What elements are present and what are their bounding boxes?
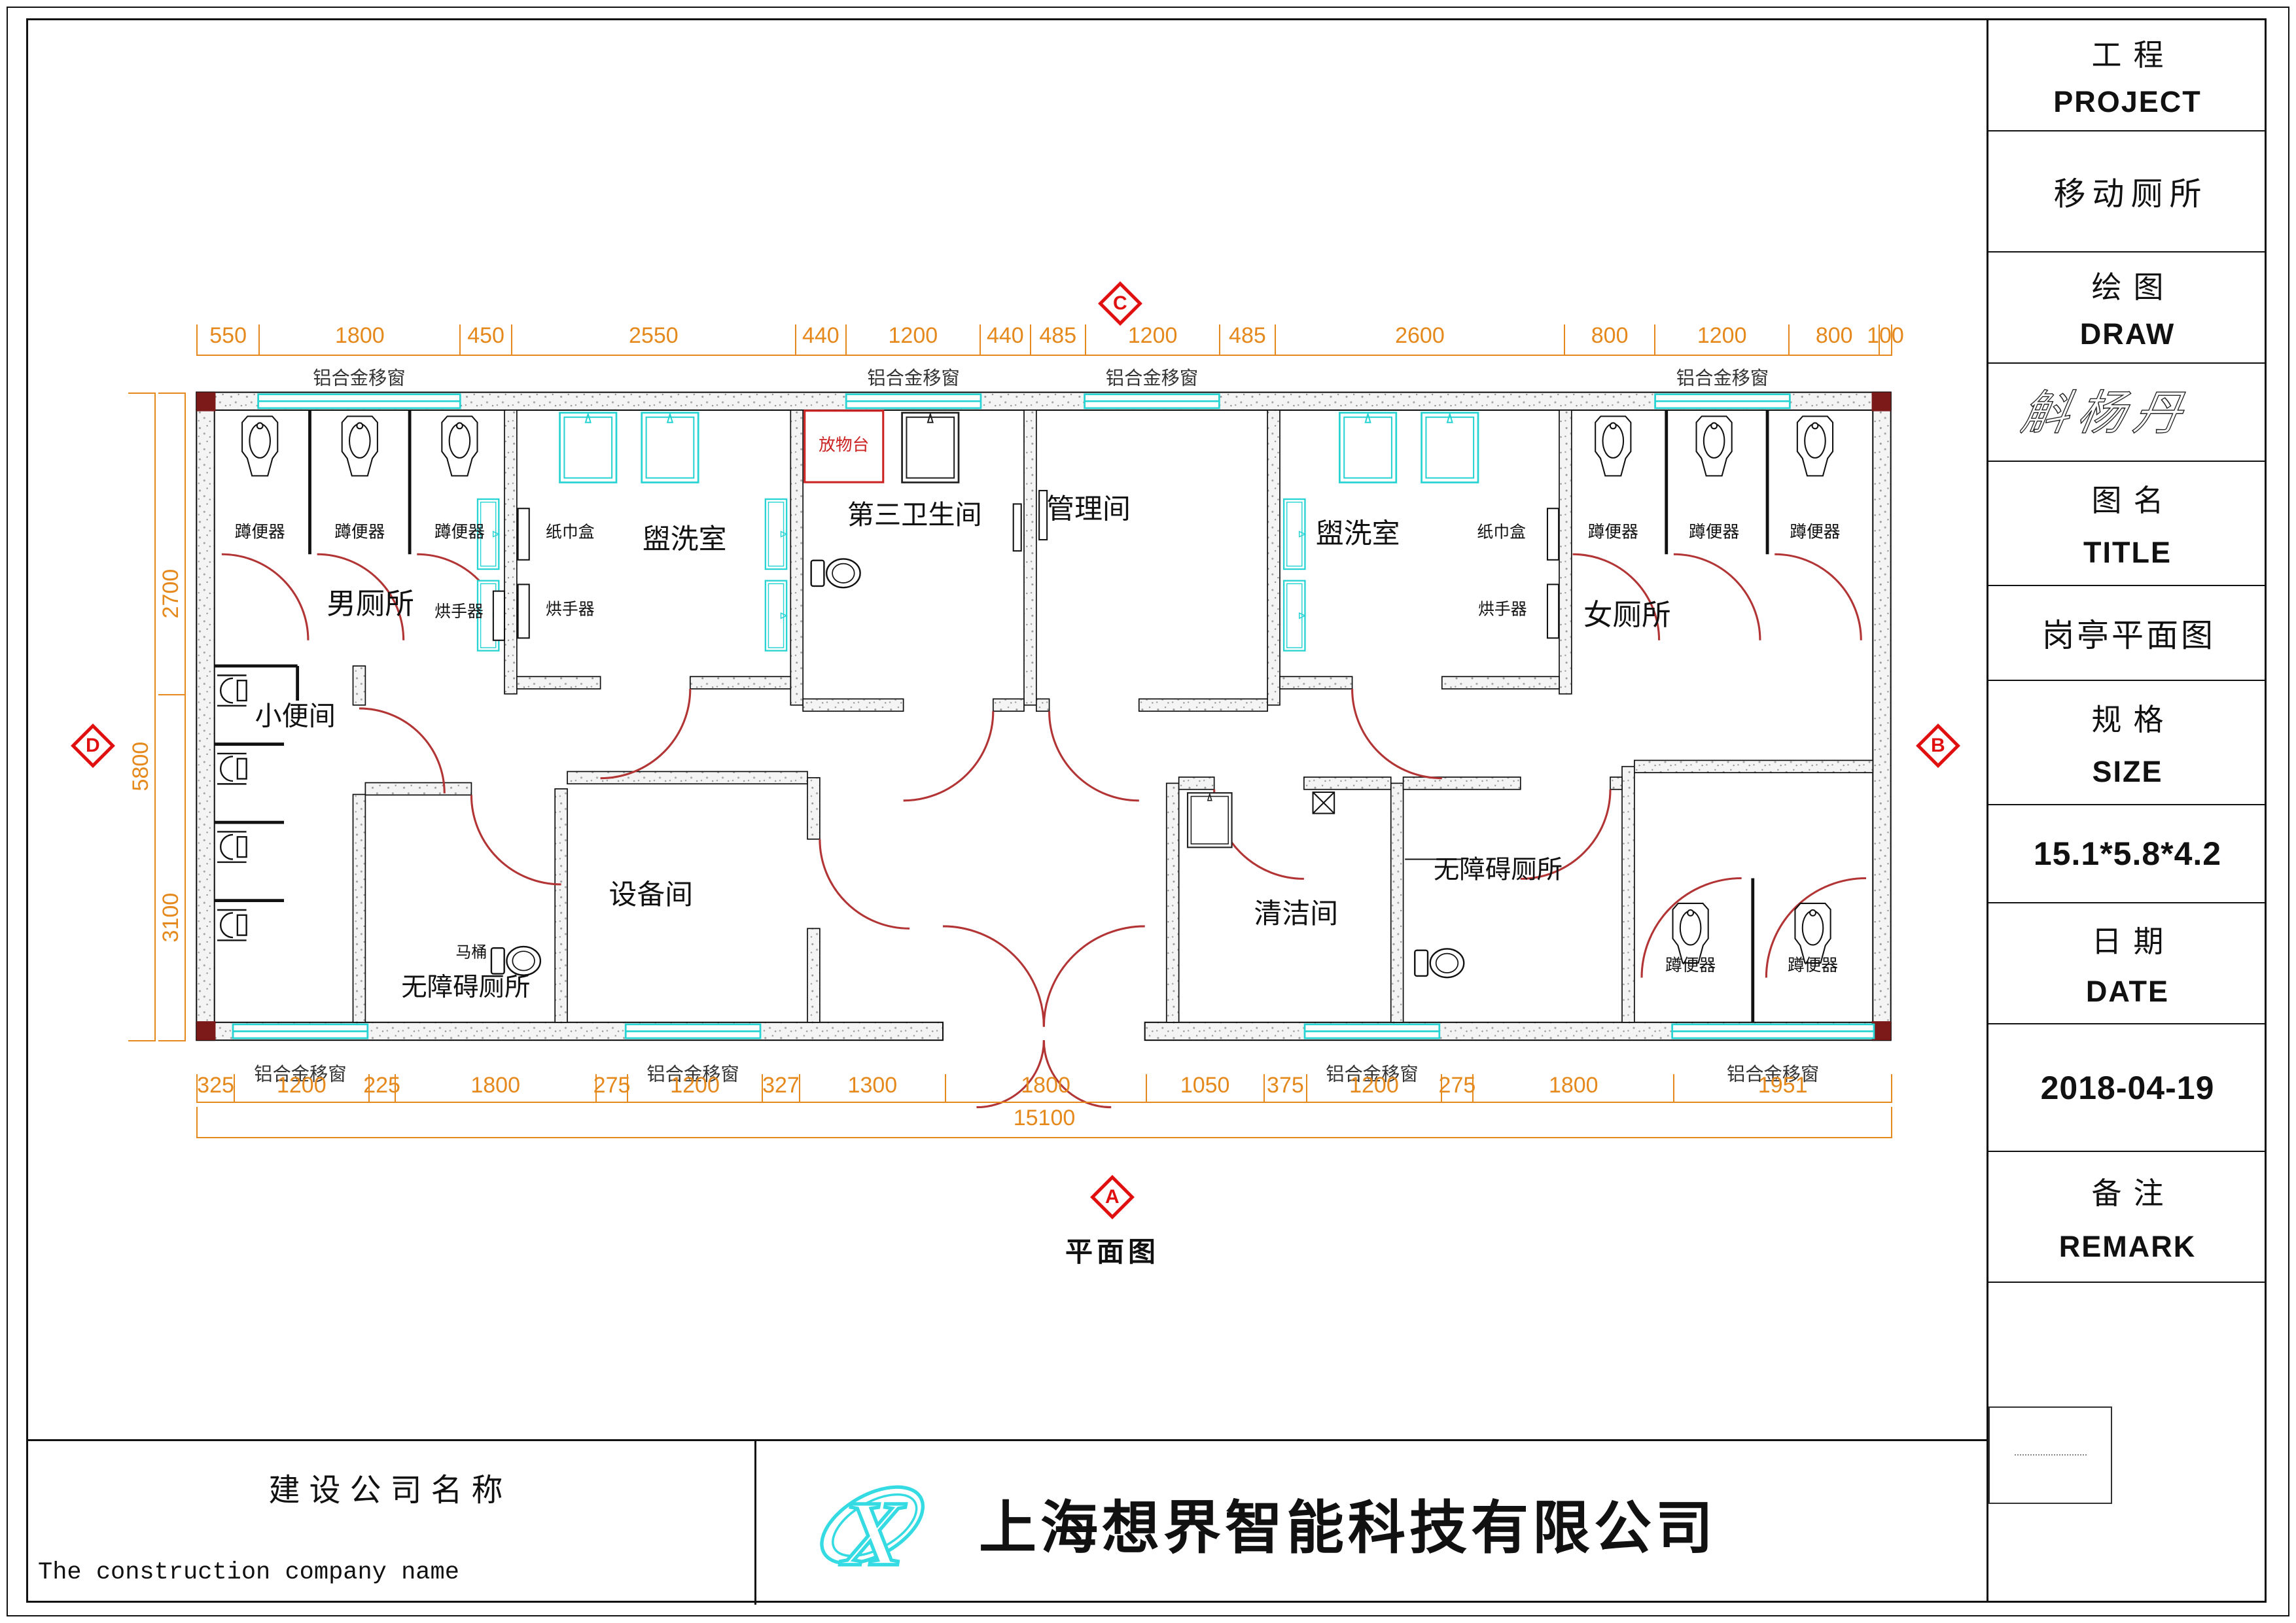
dimension-segment: 1800 <box>258 324 459 355</box>
company-label-en: The construction company name <box>38 1559 459 1586</box>
hand-dryer-icon <box>493 591 504 640</box>
squat-toilet-icon <box>1595 416 1631 476</box>
dimension-segment: 450 <box>459 324 510 355</box>
room-label-equipment: 设备间 <box>609 880 694 911</box>
sink-icon <box>1422 413 1478 483</box>
squat-toilet-icon <box>1795 903 1830 963</box>
mirror-icon <box>1284 581 1305 651</box>
dimension-segment: 1200 <box>845 324 980 355</box>
tissue-box-icon <box>1547 508 1559 560</box>
dimension-row-bottom: 3251200225180027512003271300180010503751… <box>196 1074 1892 1103</box>
stamp-line <box>2015 1454 2087 1456</box>
room-label-accessible-right: 无障碍厕所 <box>1434 856 1563 884</box>
dimension-segment: 1200 <box>1085 324 1219 355</box>
company-logo-icon: X <box>812 1464 940 1582</box>
size-label-zh: 规格 <box>2080 696 2176 739</box>
squat-toilet-label: 蹲便器 <box>235 523 285 542</box>
dimension-segment: 100 <box>1879 324 1891 355</box>
date-value: 2018-04-19 <box>2041 1069 2215 1107</box>
sink-icon <box>642 413 698 483</box>
date-label-en: DATE <box>2086 975 2169 1009</box>
window-label: 铝合金移窗 <box>867 368 959 389</box>
construction-company-cell: 建设公司名称 The construction company name <box>26 1441 756 1605</box>
urinal-icon <box>217 754 247 784</box>
dimension-segment: 1050 <box>1146 1074 1263 1102</box>
urinal-icon <box>217 831 247 862</box>
shelf-label: 放物台 <box>819 435 869 454</box>
sink-icon <box>1188 793 1232 847</box>
sink-icon <box>1339 413 1396 483</box>
stamp-box <box>1988 1406 2112 1504</box>
dimension-segment: 440 <box>795 324 845 355</box>
dimension-segment: 375 <box>1263 1074 1307 1102</box>
hand-dryer-icon <box>1547 584 1559 638</box>
signature: 斛杨丹 <box>2020 372 2236 453</box>
outer-walls <box>196 393 1890 1040</box>
title-block-row-signature: 斛杨丹 <box>1988 364 2267 462</box>
dimension-segment: 440 <box>980 324 1030 355</box>
window-label: 铝合金移窗 <box>313 368 405 389</box>
squat-toilet-label: 蹲便器 <box>1665 956 1716 975</box>
dimension-segment: 225 <box>368 1074 395 1102</box>
squat-toilet-icon <box>242 416 277 476</box>
dimension-segment: 3100 <box>158 694 185 1040</box>
design-company-cell: X 上海想界智能科技有限公司 <box>756 1441 1988 1605</box>
title-label-zh: 图名 <box>2080 477 2176 520</box>
squat-toilet-label: 蹲便器 <box>1588 523 1638 542</box>
dimension-segment: 1800 <box>945 1074 1146 1102</box>
company-name: 上海想界智能科技有限公司 <box>979 1482 1717 1565</box>
date-label-zh: 日期 <box>2080 918 2176 961</box>
size-label-en: SIZE <box>2092 755 2163 789</box>
squat-toilet-icon <box>1797 416 1833 476</box>
company-label-zh: 建设公司名称 <box>26 1464 754 1510</box>
squat-toilet-icon <box>342 416 378 476</box>
squat-toilet-icon <box>1673 903 1708 963</box>
title-label-en: TITLE <box>2083 536 2172 570</box>
title-block-row-size-label: 规格 SIZE <box>1988 681 2267 805</box>
wall-seat-icon <box>1039 491 1047 540</box>
dimension-segment: 1800 <box>1472 1074 1673 1102</box>
hand-dryer-icon <box>518 584 529 638</box>
dimension-row-total: 15100 <box>196 1107 1892 1138</box>
dimension-segment: 2600 <box>1275 324 1564 355</box>
squat-toilet-label: 蹲便器 <box>1689 523 1739 542</box>
dimension-col-left-total: 5800 <box>128 393 156 1041</box>
toilet-label: 马桶 <box>455 944 487 962</box>
toilet-icon <box>811 559 860 587</box>
plan-view-caption: 平面图 <box>1027 1230 1197 1270</box>
dimension-segment: 327 <box>762 1074 799 1102</box>
tissue-box-icon <box>518 508 529 560</box>
dimension-col-left: 27003100 <box>158 393 186 1041</box>
svg-text:X: X <box>839 1482 906 1582</box>
project-value: 移动厕所 <box>2047 168 2208 215</box>
urinal-icon <box>217 910 247 940</box>
title-block-row-remark-label: 备注 REMARK <box>1988 1152 2267 1283</box>
title-block-row-project-label: 工程 PROJECT <box>1988 20 2267 131</box>
drawing-sheet: 铝合金移窗 铝合金移窗 铝合金移窗 铝合金移窗 铝合金移窗 铝合金移窗 铝合金移… <box>0 0 2296 1623</box>
dimension-segment: 1200 <box>1306 1074 1440 1102</box>
dimension-segment: 1300 <box>799 1074 944 1102</box>
squat-toilet-icon <box>1697 416 1732 476</box>
project-label-zh: 工程 <box>2080 31 2176 75</box>
toilet-icon <box>491 947 540 975</box>
hand-dryer-label: 烘手器 <box>546 601 595 619</box>
dimension-segment: 550 <box>196 324 258 355</box>
sink-icon <box>560 413 616 483</box>
stall-partitions <box>215 410 1767 1022</box>
dimension-segment: 5800 <box>128 393 154 1040</box>
room-label-urinal: 小便间 <box>255 701 335 731</box>
title-block: 工程 PROJECT 移动厕所 绘图 DRAW 斛杨丹 图名 TITLE 岗亭平… <box>1987 20 2267 1601</box>
draw-label-zh: 绘图 <box>2080 264 2176 307</box>
window-label: 铝合金移窗 <box>1676 368 1769 389</box>
window-label: 铝合金移窗 <box>1106 368 1198 389</box>
dimension-segment: 1200 <box>1654 324 1788 355</box>
title-block-row-date-value: 2018-04-19 <box>1988 1024 2267 1152</box>
wall-seat-icon <box>1014 504 1021 551</box>
hand-dryer-label: 烘手器 <box>434 602 484 621</box>
size-value: 15.1*5.8*4.2 <box>2034 835 2221 873</box>
dimension-segment: 1951 <box>1673 1074 1891 1102</box>
room-label-mens: 男厕所 <box>327 587 414 620</box>
floor-plan-svg: 铝合金移窗 铝合金移窗 铝合金移窗 铝合金移窗 铝合金移窗 铝合金移窗 铝合金移… <box>190 357 1898 1109</box>
mirror-icon <box>766 499 786 569</box>
title-block-row-project-value: 移动厕所 <box>1988 131 2267 253</box>
title-block-row-size-value: 15.1*5.8*4.2 <box>1988 805 2267 903</box>
squat-toilet-label: 蹲便器 <box>1790 523 1840 542</box>
dimension-segment: 800 <box>1788 324 1879 355</box>
dimension-segment: 485 <box>1030 324 1085 355</box>
room-label-management: 管理间 <box>1046 495 1131 525</box>
room-label-cleaning: 清洁间 <box>1254 899 1339 930</box>
dimension-segment: 1200 <box>234 1074 368 1102</box>
remark-label-zh: 备注 <box>2080 1170 2176 1213</box>
title-block-row-title-label: 图名 TITLE <box>1988 462 2267 586</box>
title-value: 岗亭平面图 <box>2040 610 2216 656</box>
footer-bar: 建设公司名称 The construction company name X 上… <box>26 1439 1988 1605</box>
toilet-icon <box>1415 949 1464 977</box>
draw-label-en: DRAW <box>2080 317 2175 351</box>
dimension-row-top: 5501800450255044012004404851200485260080… <box>196 324 1892 356</box>
dimension-segment: 15100 <box>196 1107 1891 1137</box>
dimension-segment: 1800 <box>395 1074 595 1102</box>
room-label-washroom-right: 盥洗室 <box>1316 518 1400 550</box>
squat-toilet-label: 蹲便器 <box>334 523 385 542</box>
dimension-segment: 325 <box>196 1074 234 1102</box>
dimension-segment: 485 <box>1219 324 1274 355</box>
room-label-womens: 女厕所 <box>1583 599 1671 631</box>
dimension-segment: 275 <box>1441 1074 1473 1102</box>
room-label-washroom-left: 盥洗室 <box>643 524 727 555</box>
dimension-segment: 2700 <box>158 393 185 694</box>
tissue-box-label: 纸巾盒 <box>1477 523 1526 542</box>
mirror-icon <box>1284 499 1305 569</box>
signature-text: 斛杨丹 <box>2020 387 2195 439</box>
squat-toilet-label: 蹲便器 <box>1788 956 1838 975</box>
dimension-segment: 800 <box>1564 324 1654 355</box>
sink-icon <box>902 413 959 483</box>
urinal-icon <box>217 675 247 705</box>
title-block-row-stamp <box>1988 1283 2267 1601</box>
squat-toilet-label: 蹲便器 <box>434 523 485 542</box>
dimension-segment: 275 <box>595 1074 627 1102</box>
title-block-row-date-label: 日期 DATE <box>1988 903 2267 1024</box>
title-block-row-title-value: 岗亭平面图 <box>1988 586 2267 681</box>
hand-dryer-label: 烘手器 <box>1478 601 1527 619</box>
mirror-icon <box>766 581 786 651</box>
title-block-row-draw-label: 绘图 DRAW <box>1988 253 2267 364</box>
squat-toilet-icon <box>442 416 477 476</box>
dimension-segment: 2550 <box>511 324 795 355</box>
remark-label-en: REMARK <box>2059 1230 2197 1264</box>
tissue-box-label: 纸巾盒 <box>546 523 595 542</box>
project-label-en: PROJECT <box>2053 85 2202 119</box>
room-label-accessible-left: 无障碍厕所 <box>401 973 530 1002</box>
dimension-segment: 1200 <box>627 1074 761 1102</box>
room-label-third: 第三卫生间 <box>847 500 982 530</box>
